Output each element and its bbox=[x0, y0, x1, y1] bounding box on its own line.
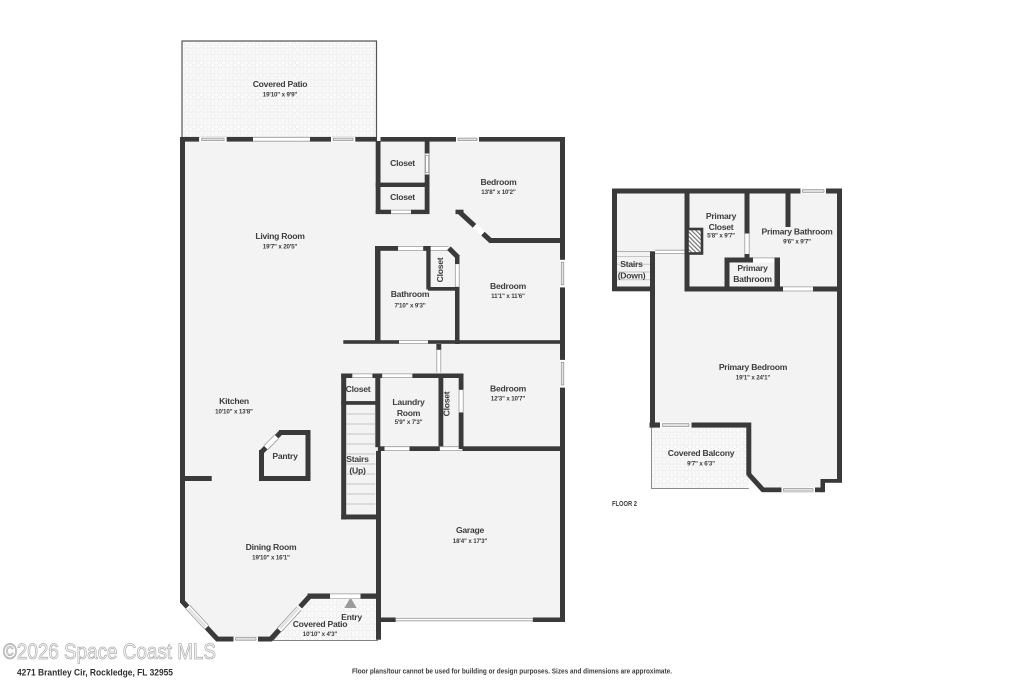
svg-text:10'10" x 4'3": 10'10" x 4'3" bbox=[303, 631, 338, 638]
svg-text:Living Room: Living Room bbox=[255, 231, 305, 241]
svg-text:7'10" x 9'3": 7'10" x 9'3" bbox=[394, 302, 425, 309]
svg-text:18'4" x 17'3": 18'4" x 17'3" bbox=[453, 538, 488, 545]
svg-text:Floor plans/tour cannot be use: Floor plans/tour cannot be used for buil… bbox=[352, 669, 672, 676]
svg-text:Garage: Garage bbox=[456, 525, 485, 535]
svg-text:10'10" x 13'8": 10'10" x 13'8" bbox=[215, 409, 253, 416]
svg-text:5'8" x 9'7": 5'8" x 9'7" bbox=[707, 233, 735, 240]
svg-text:12'3" x 10'7": 12'3" x 10'7" bbox=[491, 395, 526, 402]
svg-text:Room: Room bbox=[397, 408, 421, 418]
svg-text:Closet: Closet bbox=[390, 192, 415, 202]
svg-text:FLOOR 2: FLOOR 2 bbox=[612, 501, 637, 508]
svg-text:Covered Patio: Covered Patio bbox=[253, 79, 308, 89]
svg-text:Primary Bathroom: Primary Bathroom bbox=[762, 227, 834, 237]
svg-text:Dining Room: Dining Room bbox=[246, 542, 297, 552]
svg-text:Laundry: Laundry bbox=[392, 397, 425, 407]
svg-text:(Down): (Down) bbox=[618, 271, 646, 281]
svg-text:Bathroom: Bathroom bbox=[391, 289, 430, 299]
svg-text:Kitchen: Kitchen bbox=[219, 396, 249, 406]
svg-text:Closet: Closet bbox=[346, 384, 371, 394]
svg-text:Primary: Primary bbox=[737, 263, 768, 273]
svg-text:11'1" x 11'6": 11'1" x 11'6" bbox=[491, 293, 525, 300]
svg-text:Bedroom: Bedroom bbox=[481, 177, 518, 187]
svg-text:Bedroom: Bedroom bbox=[490, 384, 527, 394]
svg-text:Pantry: Pantry bbox=[272, 451, 298, 461]
svg-text:19'7" x 20'5": 19'7" x 20'5" bbox=[263, 243, 298, 250]
svg-text:5'9" x 7'3": 5'9" x 7'3" bbox=[395, 419, 423, 426]
svg-text:©2026 Space Coast MLS: ©2026 Space Coast MLS bbox=[3, 639, 216, 664]
svg-text:Primary Bedroom: Primary Bedroom bbox=[719, 362, 788, 372]
svg-text:13'8" x 10'2": 13'8" x 10'2" bbox=[481, 189, 516, 196]
svg-text:9'7" x 6'3": 9'7" x 6'3" bbox=[687, 461, 715, 468]
svg-text:Closet: Closet bbox=[442, 391, 452, 416]
svg-text:19'10" x 16'1": 19'10" x 16'1" bbox=[252, 555, 290, 562]
svg-text:Stairs: Stairs bbox=[620, 259, 643, 269]
svg-text:19'1" x 24'1": 19'1" x 24'1" bbox=[736, 375, 771, 382]
svg-text:Primary: Primary bbox=[706, 211, 737, 221]
svg-text:Bedroom: Bedroom bbox=[490, 281, 527, 291]
svg-text:Closet: Closet bbox=[390, 158, 415, 168]
svg-text:19'10" x 9'9": 19'10" x 9'9" bbox=[263, 92, 298, 99]
svg-text:Covered Balcony: Covered Balcony bbox=[668, 448, 735, 458]
svg-text:9'6" x 9'7": 9'6" x 9'7" bbox=[783, 239, 811, 246]
svg-text:Covered Patio: Covered Patio bbox=[293, 619, 348, 629]
svg-text:(Up): (Up) bbox=[349, 466, 366, 476]
svg-text:Stairs: Stairs bbox=[346, 454, 369, 464]
svg-text:Bathroom: Bathroom bbox=[733, 274, 772, 284]
svg-text:Closet: Closet bbox=[435, 257, 445, 282]
svg-text:Closet: Closet bbox=[709, 222, 734, 232]
svg-text:4271 Brantley Cir, Rockledge,: 4271 Brantley Cir, Rockledge, FL 32955 bbox=[17, 668, 174, 679]
